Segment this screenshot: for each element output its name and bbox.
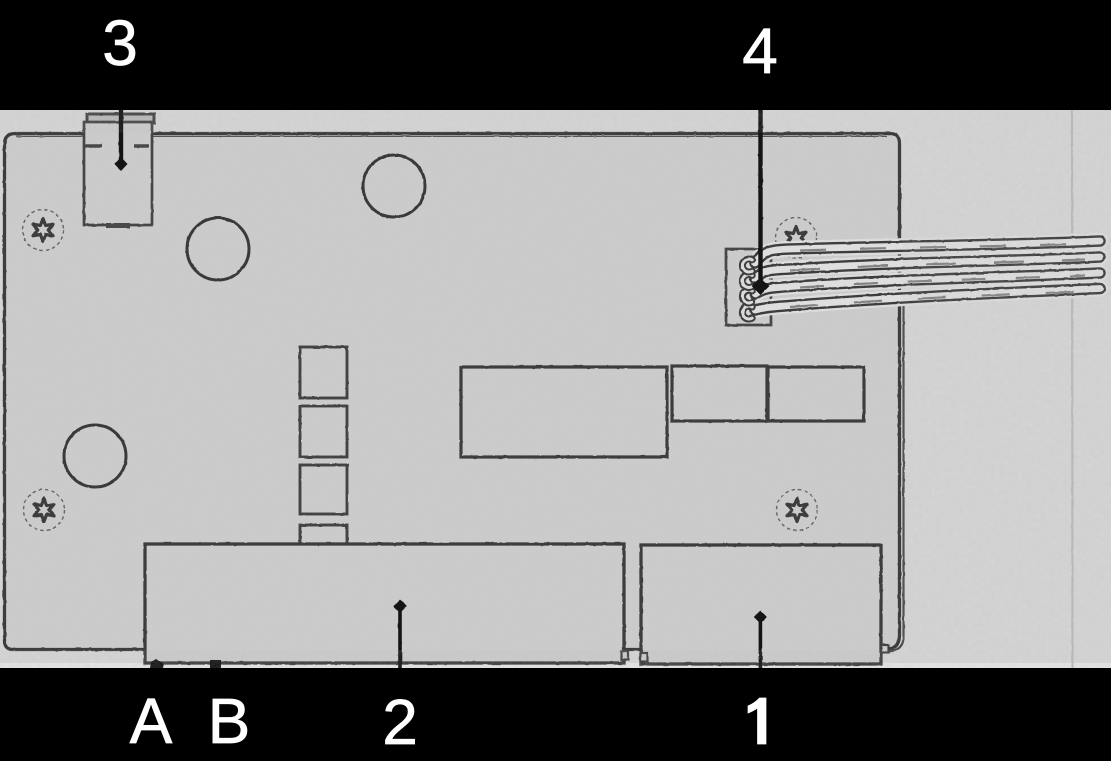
svg-text:A: A xyxy=(130,685,173,757)
svg-text:2: 2 xyxy=(382,686,418,758)
svg-text:4: 4 xyxy=(742,15,778,87)
svg-text:B: B xyxy=(208,685,251,757)
svg-text:3: 3 xyxy=(102,7,138,79)
